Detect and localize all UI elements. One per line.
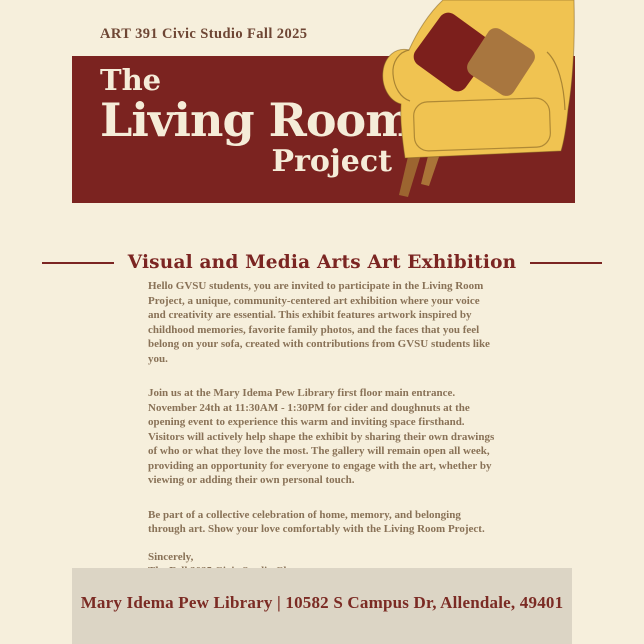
footer-address: Mary Idema Pew Library | 10582 S Campus …: [72, 593, 572, 613]
poster-background: { "poster": { "kicker": "ART 391 Civic S…: [0, 0, 644, 644]
armchair-icon: [377, 0, 577, 205]
course-kicker-text: ART 391 Civic Studio Fall 2025: [100, 26, 307, 43]
body-paragraph-1: Hello GVSU students, you are invited to …: [148, 279, 498, 366]
body-paragraph-2: Join us at the Mary Idema Pew Library fi…: [148, 386, 498, 488]
title-line-project: Project: [100, 145, 392, 178]
poster-title: The Living Room Project: [100, 64, 392, 178]
heading-rule-left: [42, 262, 114, 264]
title-line-the: The: [100, 64, 392, 97]
section-heading: Visual and Media Arts Art Exhibition: [128, 252, 517, 273]
signoff-sincerely: Sincerely,: [148, 550, 498, 565]
heading-rule-right: [530, 262, 602, 264]
footer-band: Mary Idema Pew Library | 10582 S Campus …: [72, 568, 572, 644]
body-paragraph-3: Be part of a collective celebration of h…: [148, 508, 498, 537]
armchair-seat-cushion: [413, 98, 551, 152]
title-line-living-room: Living Room: [100, 97, 392, 144]
body-copy: Hello GVSU students, you are invited to …: [148, 279, 498, 579]
section-heading-row: Visual and Media Arts Art Exhibition: [0, 252, 644, 273]
